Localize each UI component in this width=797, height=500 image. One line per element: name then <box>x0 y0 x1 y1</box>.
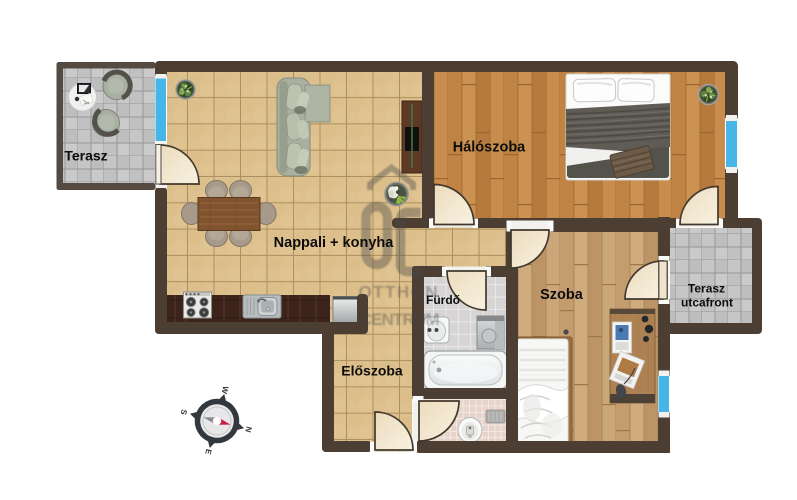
svg-text:Nappali + konyha: Nappali + konyha <box>274 235 395 251</box>
svg-text:Előszoba: Előszoba <box>341 363 403 379</box>
svg-text:utcafront: utcafront <box>681 296 733 310</box>
svg-text:Szoba: Szoba <box>540 287 584 303</box>
svg-text:Terasz: Terasz <box>688 282 725 296</box>
svg-text:Hálószoba: Hálószoba <box>453 140 526 156</box>
svg-text:Fürdő: Fürdő <box>426 293 460 307</box>
svg-text:Terasz: Terasz <box>64 148 107 164</box>
svg-text:CENTRUM: CENTRUM <box>360 310 440 329</box>
